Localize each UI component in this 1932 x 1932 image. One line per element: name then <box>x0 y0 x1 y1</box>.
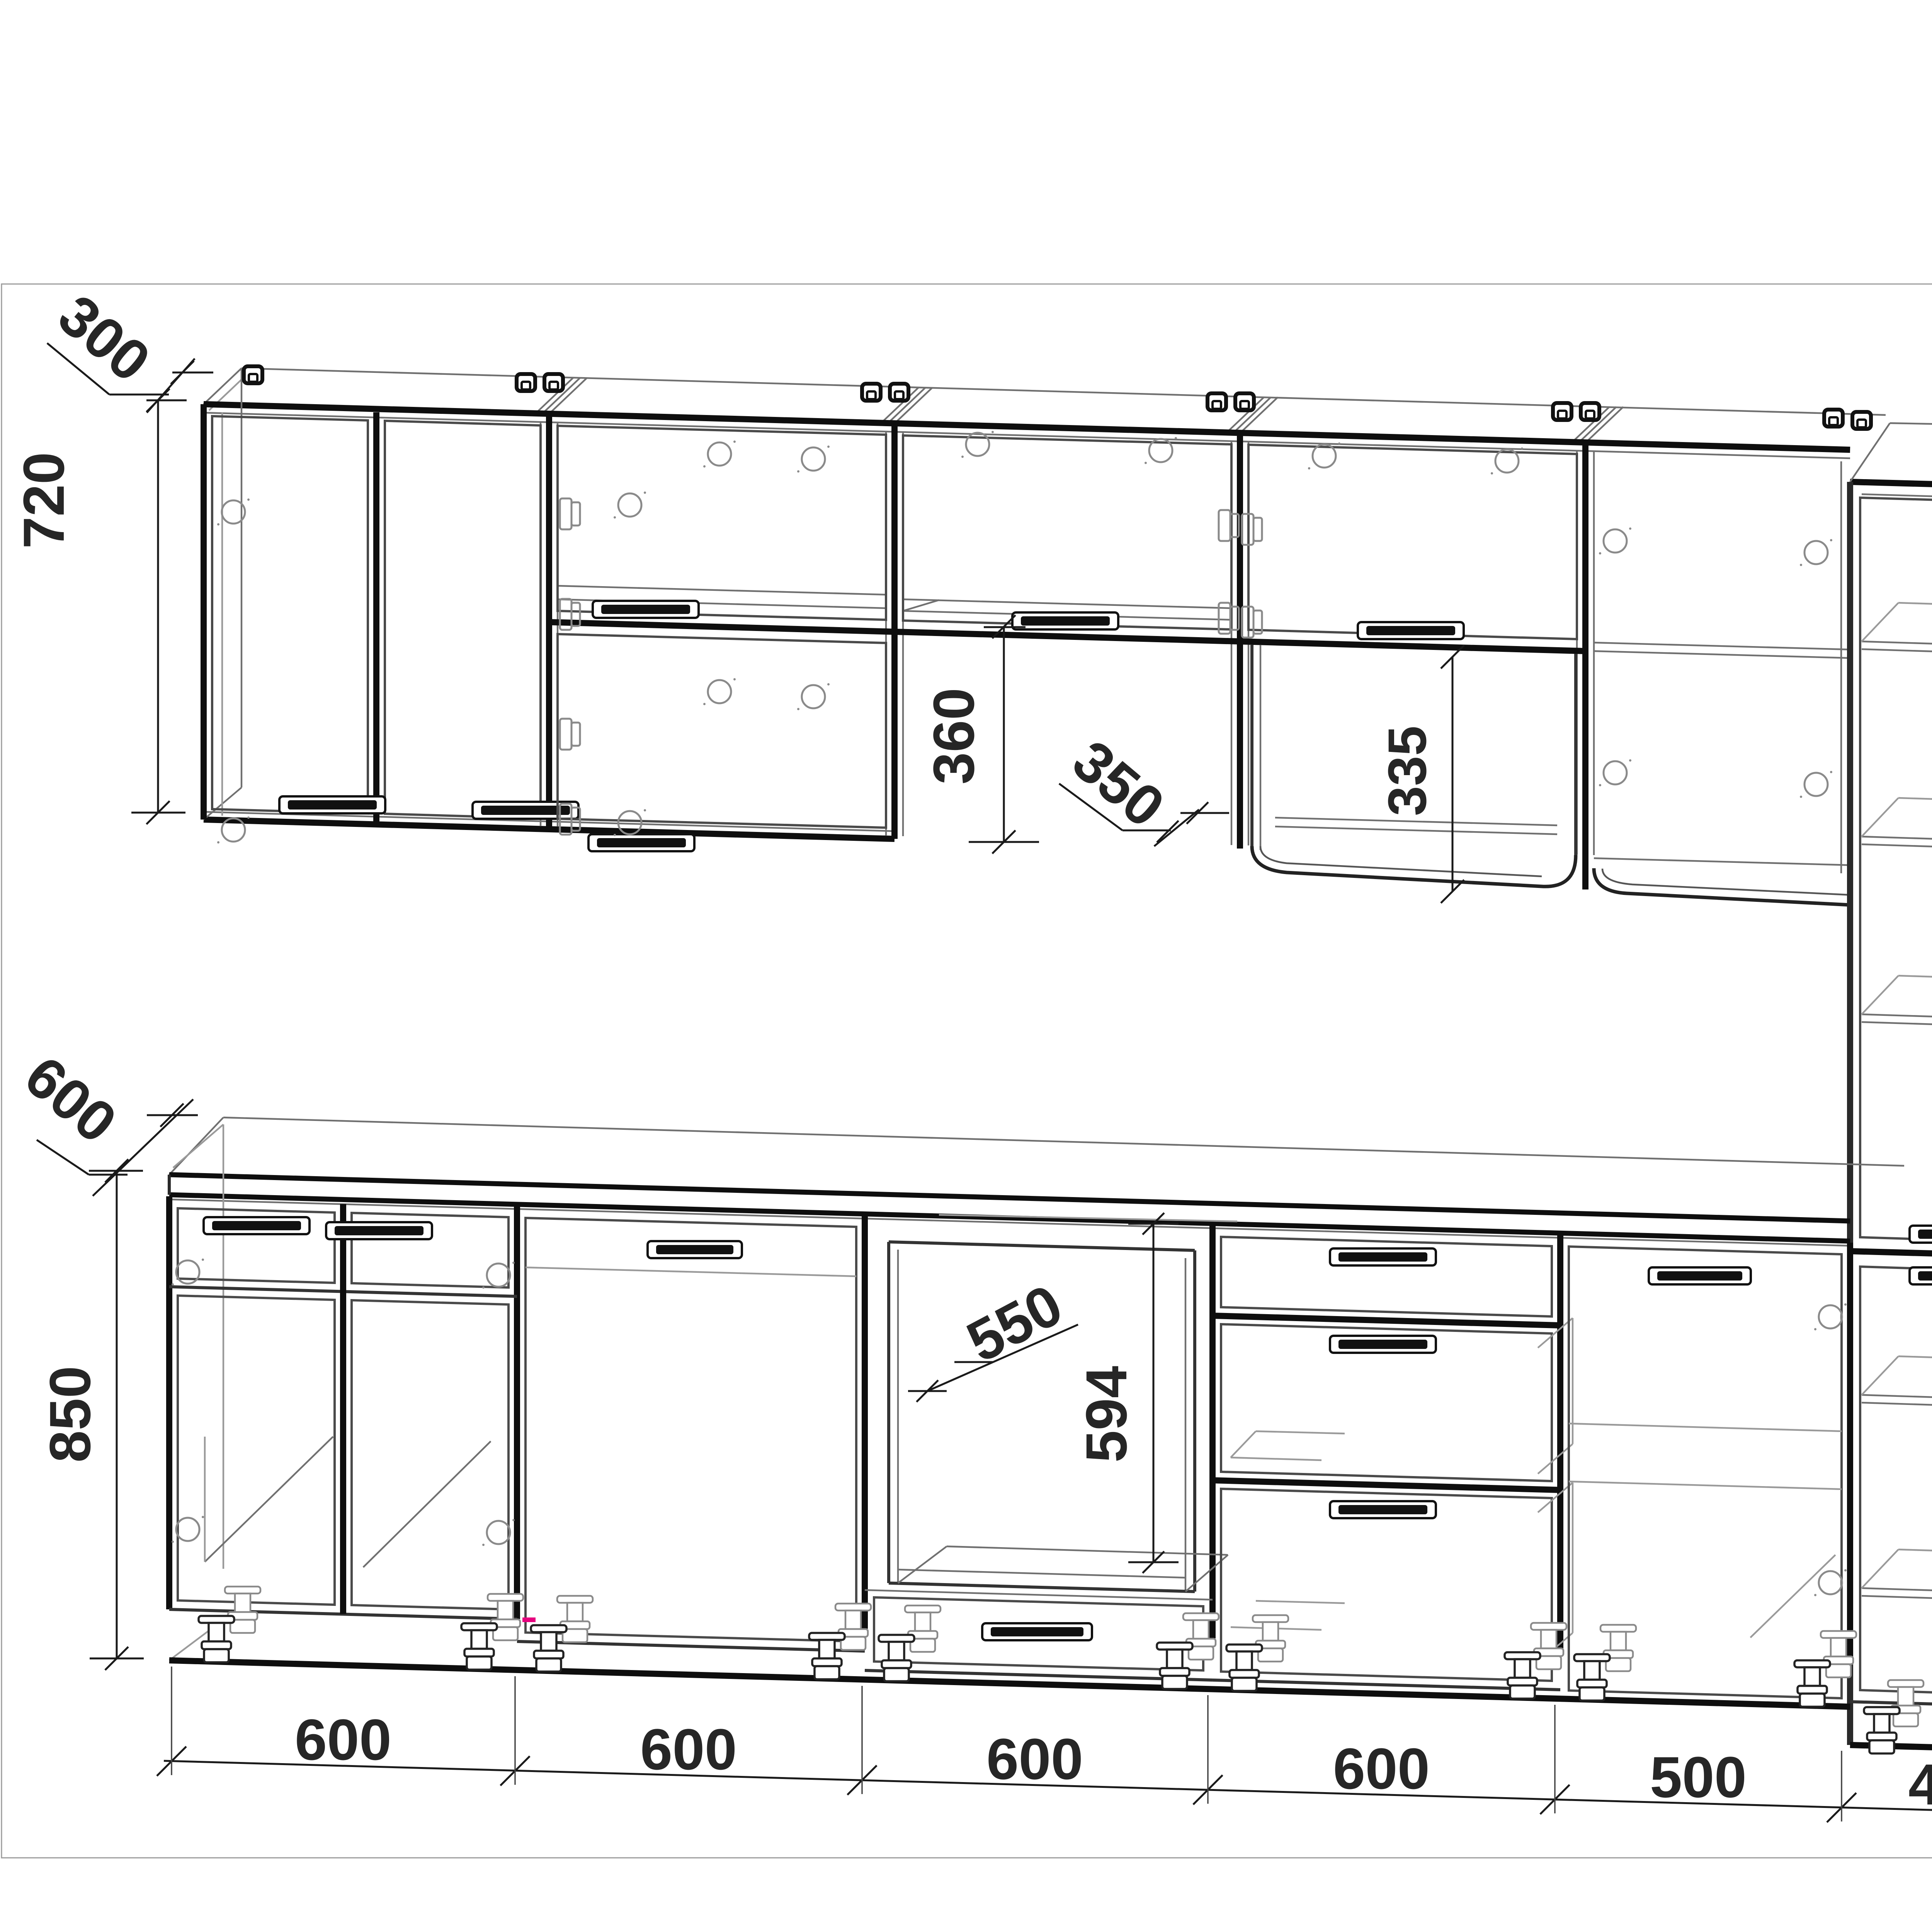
svg-text:600: 600 <box>1333 1736 1430 1801</box>
svg-text:594: 594 <box>1074 1366 1139 1463</box>
svg-text:600: 600 <box>295 1707 391 1772</box>
svg-text:400: 400 <box>1908 1752 1932 1817</box>
svg-text:500: 500 <box>1650 1745 1747 1810</box>
svg-text:360: 360 <box>921 688 986 784</box>
svg-text:600: 600 <box>640 1717 737 1782</box>
svg-text:600: 600 <box>986 1726 1083 1791</box>
svg-text:335: 335 <box>1377 726 1437 816</box>
svg-text:850: 850 <box>37 1366 102 1463</box>
svg-text:720: 720 <box>11 452 76 549</box>
